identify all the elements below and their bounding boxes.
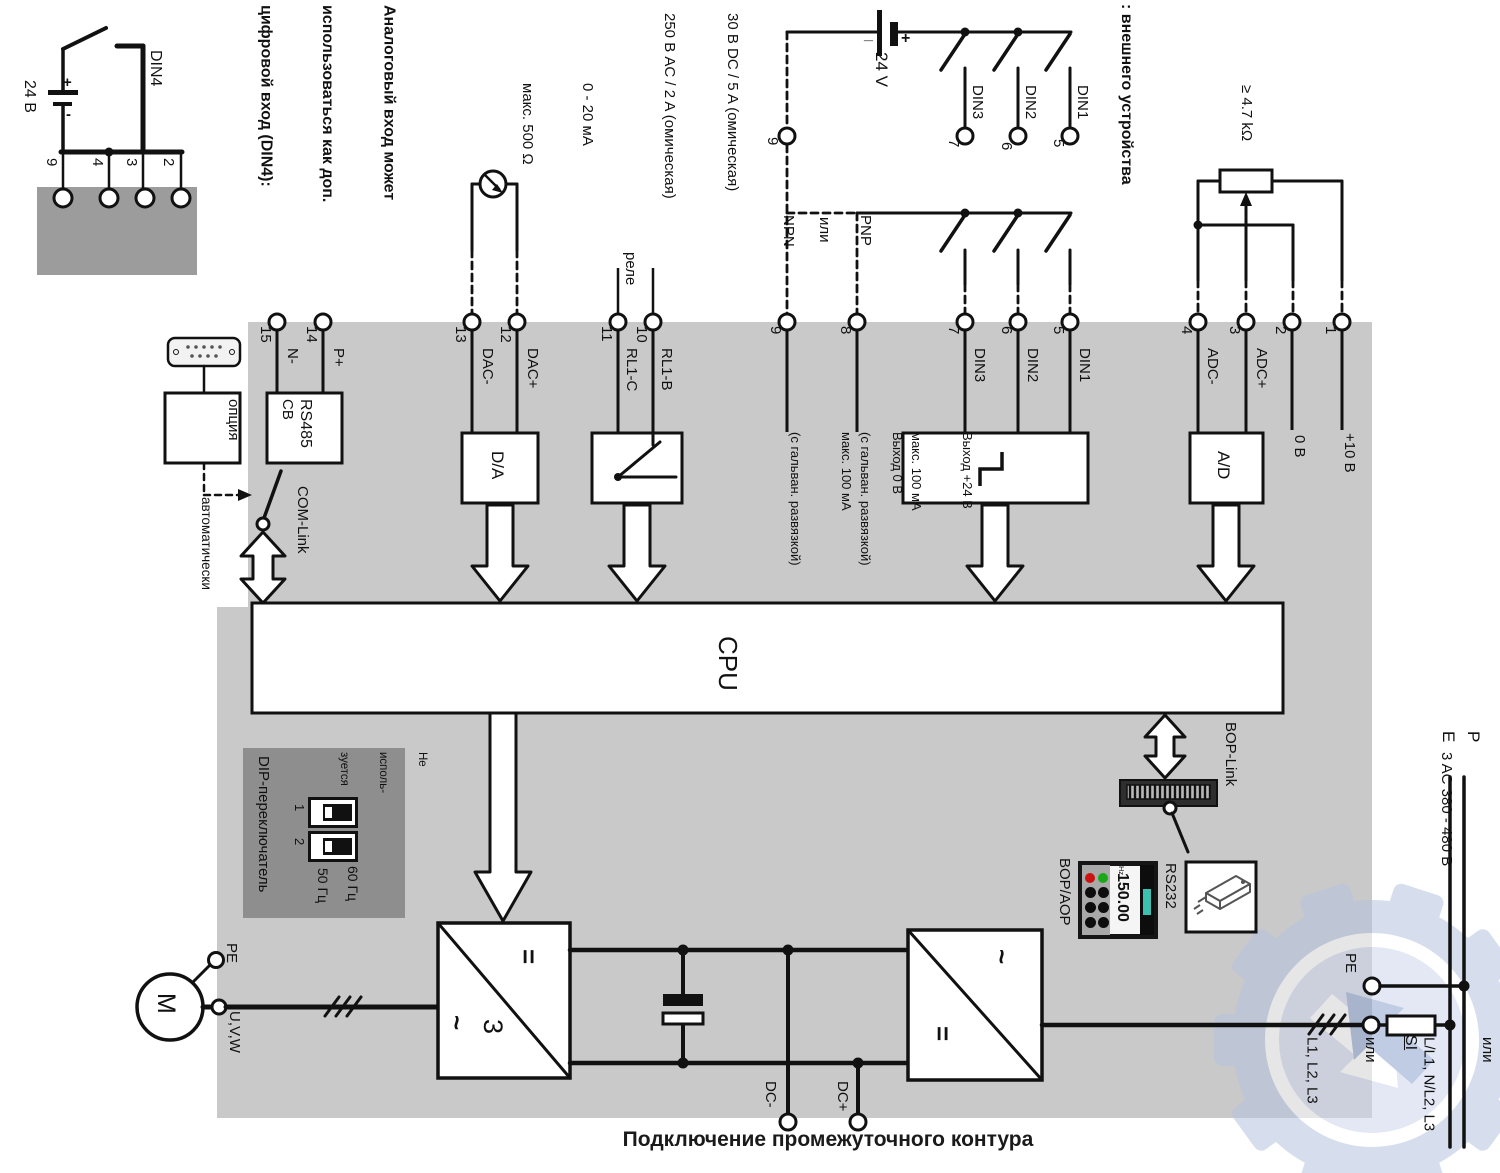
dip-not-used-note: Не исполь- зуется	[311, 752, 454, 793]
cpu-label: CPU	[718, 636, 737, 691]
ext-battery-plus: +	[901, 30, 910, 48]
din4-terminal-2: 2	[159, 158, 178, 166]
terminal-13: 13	[451, 326, 470, 343]
bop-link-connector	[1120, 780, 1217, 852]
din4-note: Аналоговый вход может использоваться как…	[214, 5, 440, 202]
mains-option-3: L1, L2, L3	[1302, 1037, 1322, 1131]
rectifier-tilde-label: ~	[992, 949, 1011, 964]
ext-battery-label: 24 V	[872, 52, 891, 87]
signal-din3: DIN3	[970, 348, 989, 382]
ext-din3-label: DIN3	[968, 85, 987, 119]
ext-din1-label: DIN1	[1073, 85, 1092, 119]
wiring-diagram-page: Аналоговый вход может использоваться как…	[0, 0, 1500, 1173]
dip-not-used-line2: исполь-	[376, 752, 389, 793]
analog-out-max-load: макс. 500 Ω	[517, 83, 537, 165]
analog-out-range: 0 - 20 мА	[577, 83, 597, 165]
dip-1-label: 1	[290, 804, 309, 811]
ext-battery-minus: _	[864, 26, 873, 44]
dip-switch-1-slider	[323, 804, 352, 821]
ext-terminal-5: 5	[1049, 139, 1068, 147]
bus-e-label: E	[1439, 731, 1458, 742]
bop-button	[1085, 917, 1096, 928]
bop-aop-label: BOP/AOP	[1055, 858, 1074, 926]
terminal-1: 1	[1321, 326, 1340, 334]
dip-not-used-line1: Не	[415, 752, 428, 793]
mains-option-2: L/L1, N/L2, L3	[1419, 1037, 1439, 1131]
terminal-12: 12	[496, 326, 515, 343]
din4-note-line3: цифровой вход (DIN4):	[255, 5, 276, 202]
ext-terminal-9: 9	[763, 137, 782, 145]
signal-p-plus: P+	[329, 348, 348, 367]
dc-plus-label: DC+	[833, 1081, 852, 1111]
din4-terminal-3: 3	[122, 158, 141, 166]
bop-teal-indicator	[1143, 889, 1151, 915]
pnp-label: PNP	[856, 215, 875, 246]
signal-adc-plus: ADC+	[1252, 348, 1271, 388]
dip-50hz-label: 50 Гц	[313, 868, 332, 903]
terminal-11: 11	[597, 326, 616, 342]
din4-note-line1: Аналоговый вход может	[378, 5, 399, 202]
relay-rating-dc: 30 В DC / 5 A (омическая)	[722, 13, 743, 199]
signal-n-minus: N-	[283, 348, 302, 364]
ext-din2-label: DIN2	[1021, 85, 1040, 119]
motor-pe-label: PE	[222, 943, 241, 963]
auto-label: автоматически	[197, 497, 216, 590]
output-24v-line2: макс. 100 мА	[908, 432, 925, 566]
option-label: опция	[224, 399, 242, 441]
terminal-15: 15	[256, 326, 275, 343]
rs232-label: RS232	[1161, 863, 1180, 909]
or-label: или	[815, 217, 834, 243]
din4-note-line2: использоваться как доп.	[317, 5, 338, 202]
bop-keypad	[1082, 865, 1110, 935]
dip-title: DIP-переключатель	[254, 756, 273, 893]
signal-dac-minus: DAC-	[478, 348, 497, 385]
ext-terminal-7: 7	[944, 139, 963, 147]
din4-battery-plus: +	[63, 74, 72, 91]
mains-pe-label: PE	[1341, 953, 1360, 973]
bop-button	[1098, 887, 1109, 898]
din4-terminal-4: 4	[88, 158, 107, 166]
external-device-note: : внешнего устройства	[1117, 4, 1136, 185]
rs485-label: RS485	[296, 399, 315, 448]
terminal-7: 7	[944, 326, 963, 334]
dip-not-used-line3: зуется	[337, 752, 350, 793]
din4-battery-label: 24 В	[20, 80, 39, 113]
bop-button	[1085, 887, 1096, 898]
diagram-caption: Подключение промежуточного контура	[578, 1124, 1078, 1156]
din4-label: DIN4	[146, 50, 165, 86]
analog-output-loop	[472, 171, 517, 314]
dip-switch-2-slider	[323, 838, 352, 855]
com-link-label: COM-Link	[293, 486, 312, 554]
output-24v-note: Выход +24 В макс. 100 мА (с гальван. раз…	[823, 432, 1010, 566]
uvw-label: U,V,W	[225, 1011, 244, 1053]
cb-label: CB	[278, 399, 296, 441]
relay-label: реле	[621, 252, 640, 285]
npn-label: NPN	[779, 215, 798, 247]
output-24v-line3: (с гальван. развязкой)	[857, 432, 874, 566]
relay-rating-ac: 250 В AC / 2 A (омическая)	[659, 13, 680, 199]
bop-button	[1098, 902, 1109, 913]
analog-out-rating: 0 - 20 мА макс. 500 Ω	[477, 83, 637, 165]
dip-2-label: 2	[290, 838, 309, 845]
din4-terminal-9: 9	[42, 158, 61, 166]
output-0v-line3: (с гальван. развязкой)	[787, 432, 804, 566]
external-device-circuit	[779, 10, 1078, 314]
internal-wires	[277, 330, 1342, 433]
mains-lines-note: L/L1, N/L2 или L/L1, N/L2, L3 или L1, L2…	[1263, 1037, 1500, 1131]
dip-60hz-label: 60 Гц	[343, 866, 362, 901]
din4-battery-minus: -	[66, 106, 71, 123]
bop-link-label: BOP-Link	[1221, 722, 1240, 786]
signal-adc-minus: ADC-	[1203, 348, 1222, 385]
terminal-8: 8	[836, 326, 855, 334]
dip-switch-2	[308, 831, 358, 862]
signal-0v: 0 В	[1290, 435, 1309, 458]
terminal-3: 3	[1225, 326, 1244, 334]
signal-dac-plus: DAC+	[523, 348, 542, 388]
bop-side-strip	[1140, 865, 1154, 935]
ext-terminal-6: 6	[997, 142, 1016, 150]
dc-minus-label: DC-	[761, 1081, 780, 1108]
bop-display-value: 150.00	[1113, 873, 1132, 922]
ad-label: A/D	[1214, 451, 1233, 479]
terminal-10: 10	[632, 326, 651, 343]
mains-voltage-1: 1/3 AC 200 - 240 В	[1496, 752, 1500, 879]
da-label: D/A	[488, 451, 507, 479]
pot-label: ≥ 4.7 kΩ	[1237, 85, 1256, 141]
signal-rl1b: RL1-B	[657, 348, 676, 391]
terminal-2: 2	[1271, 326, 1290, 334]
bop-display-hz: Hz	[1112, 866, 1131, 875]
motor-label: M	[156, 993, 175, 1014]
led-red	[1085, 873, 1095, 883]
terminal-14: 14	[302, 326, 321, 343]
mains-voltage-note: 1/3 AC 200 - 240 В 3 AC 380 - 480 В	[1396, 752, 1500, 879]
inverter-3-label: 3	[483, 1019, 502, 1034]
relay-rating: 30 В DC / 5 A (омическая) 250 В AC / 2 A…	[617, 13, 785, 199]
rectifier-eq-label: =	[933, 1026, 952, 1041]
bus-p-label: P	[1464, 731, 1483, 742]
terminal-6: 6	[997, 326, 1016, 334]
led-green	[1098, 873, 1108, 883]
terminal-4: 4	[1177, 326, 1196, 334]
signal-din2: DIN2	[1023, 348, 1042, 382]
bop-button	[1085, 902, 1096, 913]
dip-switch-1	[308, 797, 358, 828]
mains-voltage-2: 3 AC 380 - 480 В	[1436, 752, 1456, 879]
bop-button	[1098, 917, 1109, 928]
output-24v-line1: Выход +24 В	[959, 432, 976, 566]
potentiometer-circuit	[1194, 170, 1343, 314]
signal-10v: +10 В	[1340, 433, 1359, 473]
mains-or-1: или	[1478, 1037, 1498, 1131]
signal-rl1c: RL1-C	[622, 348, 641, 391]
terminal-9: 9	[766, 326, 785, 334]
inverter-tilde-label: ~	[447, 1015, 466, 1030]
terminal-5: 5	[1049, 326, 1068, 334]
mains-or-2: или	[1361, 1037, 1381, 1131]
signal-din1: DIN1	[1075, 348, 1094, 382]
inverter-eq-label: =	[519, 949, 538, 964]
